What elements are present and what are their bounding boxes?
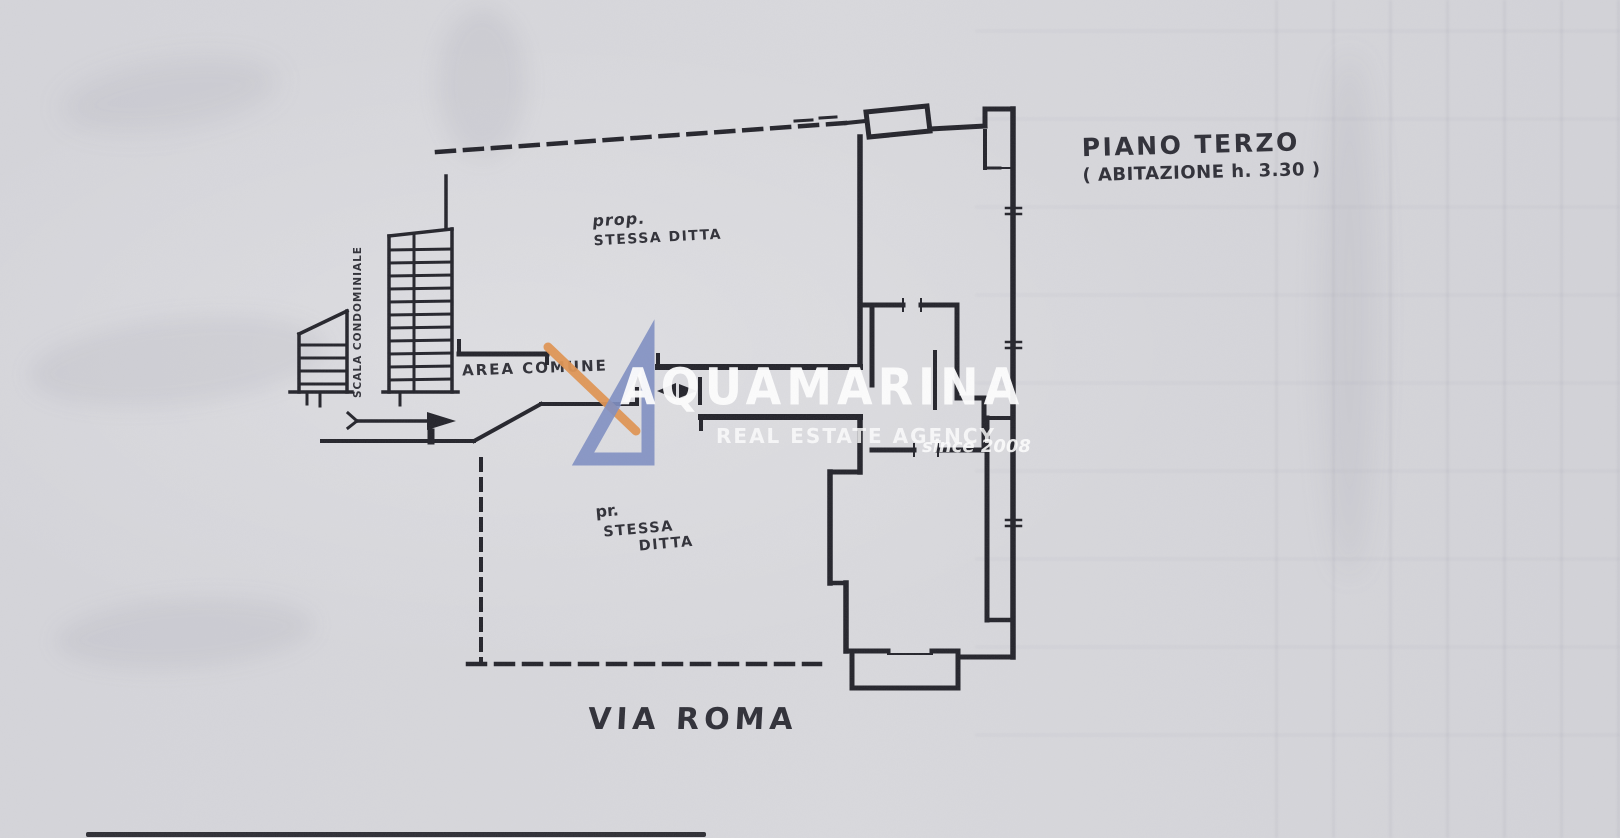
- watermark-brand: AQUAMARINA: [620, 357, 1024, 416]
- agency-watermark-logo: [0, 0, 1620, 838]
- scanned-floor-plan-sheet: { "page": { "kind": "Scanned cadastral f…: [0, 0, 1620, 838]
- watermark-since: since 2008: [922, 436, 1031, 457]
